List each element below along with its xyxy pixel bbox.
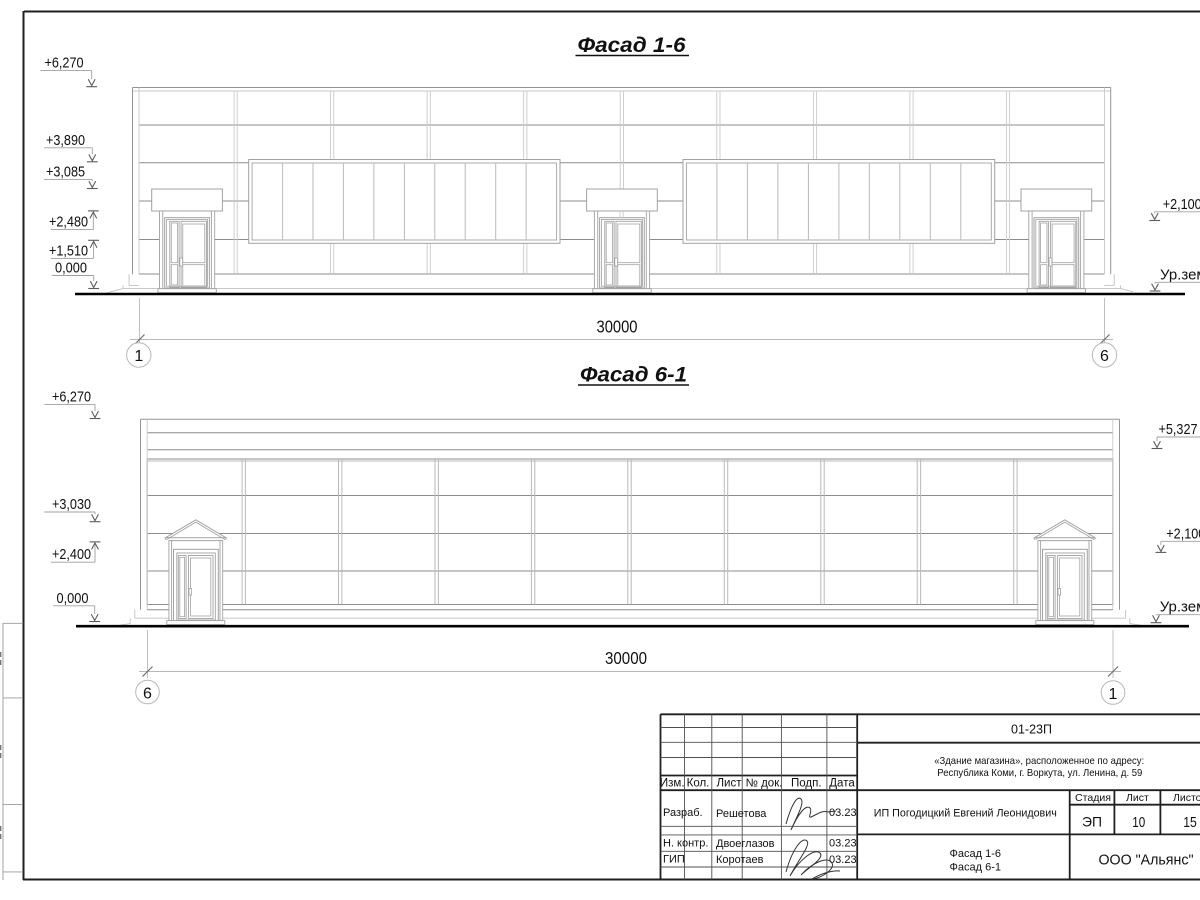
svg-text:03.23: 03.23	[829, 807, 857, 819]
svg-text:1: 1	[134, 348, 143, 365]
svg-text:+3,890: +3,890	[46, 132, 85, 149]
svg-text:ООО "Альянс": ООО "Альянс"	[1099, 852, 1194, 869]
svg-text:03.23: 03.23	[829, 854, 857, 866]
svg-text:Фасад 6-1: Фасад 6-1	[950, 862, 1001, 874]
svg-text:+3,085: +3,085	[46, 164, 85, 181]
svg-text:+2,400: +2,400	[52, 546, 91, 563]
svg-text:Коротаев: Коротаев	[716, 854, 764, 866]
svg-text:+6,270: +6,270	[45, 55, 84, 72]
svg-text:0,000: 0,000	[55, 260, 87, 277]
svg-text:Лист: Лист	[717, 777, 743, 789]
svg-text:Решетова: Решетова	[716, 808, 767, 820]
svg-text:+2,100: +2,100	[1166, 525, 1200, 542]
svg-text:ГИП: ГИП	[663, 853, 685, 865]
svg-text:15: 15	[1183, 814, 1197, 831]
svg-text:03.23: 03.23	[829, 838, 857, 850]
svg-text:ЭП: ЭП	[1082, 814, 1102, 830]
svg-text:Изм.: Изм.	[660, 777, 685, 789]
svg-text:1: 1	[1109, 686, 1118, 703]
svg-text:Фасад 6-1: Фасад 6-1	[580, 363, 687, 387]
svg-text:Листов: Листов	[1173, 792, 1200, 804]
svg-text:Ур.земли: Ур.земли	[1160, 266, 1200, 283]
svg-text:+6,270: +6,270	[52, 388, 91, 405]
svg-text:Стадия: Стадия	[1075, 792, 1111, 804]
svg-text:ИП Погодицкий Евгений Леонидов: ИП Погодицкий Евгений Леонидович	[874, 808, 1057, 820]
svg-text:Дата: Дата	[829, 777, 855, 789]
svg-text:10: 10	[1132, 814, 1145, 831]
svg-text:Лист: Лист	[1126, 792, 1149, 804]
svg-text:+5,327: +5,327	[1159, 421, 1198, 438]
svg-text:+1,510: +1,510	[49, 242, 88, 259]
svg-text:6: 6	[1100, 348, 1109, 365]
svg-text:Разраб.: Разраб.	[663, 807, 703, 819]
svg-text:Республика Коми, г. Воркута, у: Республика Коми, г. Воркута, ул. Ленина,…	[937, 767, 1142, 779]
svg-text:Фасад 1-6: Фасад 1-6	[578, 33, 687, 57]
svg-text:Подп.: Подп.	[791, 777, 822, 789]
svg-text:01-23П: 01-23П	[1011, 721, 1052, 736]
svg-text:6: 6	[143, 685, 152, 702]
svg-text:Фасад 1-6: Фасад 1-6	[950, 848, 1001, 860]
svg-text:«Здание магазина», расположенн: «Здание магазина», расположенное по адре…	[934, 755, 1144, 767]
svg-text:+3,030: +3,030	[52, 496, 91, 513]
svg-text:30000: 30000	[597, 317, 638, 337]
svg-text:+2,480: +2,480	[49, 214, 88, 231]
svg-text:Двоеглазов: Двоеглазов	[716, 838, 775, 850]
svg-text:+2,100: +2,100	[1163, 196, 1200, 213]
svg-text:Н. контр.: Н. контр.	[663, 838, 708, 850]
svg-text:Кол.: Кол.	[687, 777, 710, 789]
svg-text:Ур.земли: Ур.земли	[1160, 599, 1200, 616]
svg-text:30000: 30000	[605, 648, 647, 668]
svg-text:№ док.: № док.	[746, 777, 783, 789]
svg-text:0,000: 0,000	[57, 590, 89, 607]
